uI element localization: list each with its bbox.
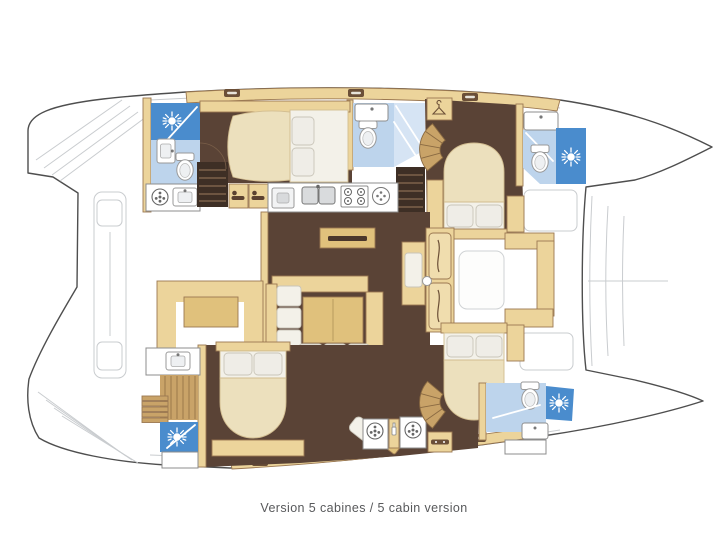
toilet-icon <box>531 145 549 172</box>
door-leaf <box>429 283 451 329</box>
bottle-icon <box>392 423 396 435</box>
floor-plan <box>0 0 728 546</box>
pillow <box>447 336 473 357</box>
washer-icon <box>152 189 168 205</box>
pillow <box>254 353 282 375</box>
duvet <box>444 143 504 202</box>
drawer-icon <box>431 440 449 445</box>
headboard <box>216 342 290 351</box>
pillow <box>224 353 252 375</box>
sofa-arm <box>266 284 277 348</box>
sink-icon <box>173 188 197 206</box>
stern-steps-starboard <box>38 392 138 463</box>
shower-sun-icon <box>562 148 580 166</box>
port-berth-units <box>229 184 268 208</box>
chart-seat <box>402 242 425 305</box>
caption: Version 5 cabines / 5 cabin version <box>0 501 728 515</box>
faucet <box>370 107 373 110</box>
toilet-icon <box>176 153 194 180</box>
headboard <box>441 323 507 333</box>
pillow <box>292 148 314 176</box>
cabinet <box>162 452 198 468</box>
pillow <box>292 117 314 145</box>
forward-cockpit-nook <box>459 233 554 327</box>
hatch-icon <box>462 93 478 101</box>
port-wardrobe <box>427 98 452 120</box>
stern-steps-port <box>36 100 146 181</box>
hatch-icon <box>348 89 364 97</box>
port-aft-counter <box>146 184 200 211</box>
door-leaf <box>429 233 451 279</box>
shower-sun-icon <box>550 394 568 412</box>
duvet <box>228 111 290 181</box>
nook-seat <box>537 241 554 316</box>
sofa-cushion <box>277 286 301 306</box>
pillow <box>447 205 473 227</box>
cabinet <box>505 440 546 454</box>
duvet <box>220 378 286 438</box>
nook-table <box>459 251 504 309</box>
sink-icon <box>524 112 558 130</box>
sink-icon <box>166 352 190 370</box>
trampoline-lines <box>588 196 668 366</box>
shower-sun-icon <box>168 428 186 446</box>
port-companionway-stairs <box>197 162 228 207</box>
hatch-icon <box>224 89 240 97</box>
door-knob <box>423 277 432 286</box>
bathroom-wall <box>516 104 523 186</box>
faucet <box>534 427 537 430</box>
round-burner-icon <box>373 188 390 205</box>
port-mid-bathroom <box>353 103 425 167</box>
salon-sideboard <box>320 228 375 248</box>
starboard-aft-bathroom <box>142 345 206 468</box>
washer-icon <box>367 423 383 439</box>
cockpit-settee <box>157 281 263 348</box>
foot-cabinet <box>212 440 304 456</box>
floor-plan-page: Version 5 cabines / 5 cabin version <box>0 0 728 546</box>
entry-steps <box>142 396 168 423</box>
faucet <box>539 115 542 118</box>
double-sink-icon <box>302 185 335 204</box>
stove-icon <box>341 186 368 207</box>
pillow <box>476 336 502 357</box>
nightstand <box>507 196 524 232</box>
nightstand <box>507 325 524 361</box>
dishwasher-door <box>277 193 289 203</box>
toilet-icon <box>359 121 377 148</box>
bow-bathroom <box>516 104 586 186</box>
transom-bench <box>94 192 126 378</box>
nook-seat <box>505 309 553 327</box>
sink-icon <box>522 423 548 439</box>
port-fwd-stairs <box>396 167 425 212</box>
bathroom-wall <box>479 383 486 440</box>
sink-icon <box>157 139 175 163</box>
forward-door <box>423 228 455 332</box>
galley <box>268 183 398 212</box>
cockpit-table <box>184 297 238 327</box>
sofa-cushion <box>277 308 301 328</box>
sofa-arm <box>366 292 383 348</box>
sink-icon <box>355 104 388 121</box>
washer-icon <box>405 422 421 438</box>
pillow <box>476 205 502 227</box>
